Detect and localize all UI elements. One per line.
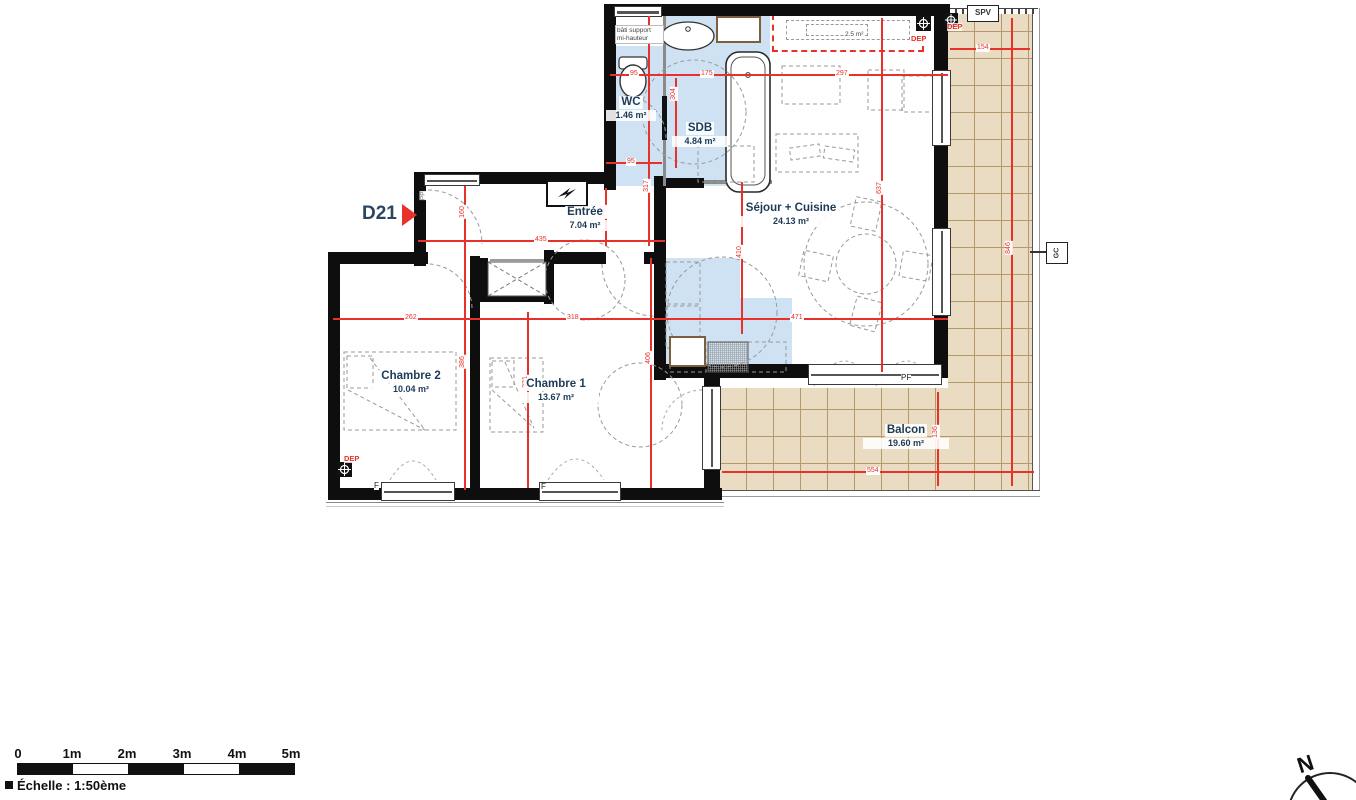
sejour-right-window-2 bbox=[932, 228, 951, 316]
scale-segment bbox=[128, 764, 183, 774]
room-name: Séjour + Cuisine bbox=[744, 202, 838, 215]
room-label-ch2: Chambre 2 10.04 m² bbox=[368, 366, 454, 395]
pp-label: PP bbox=[420, 191, 428, 200]
dim-value: 554 bbox=[866, 467, 880, 475]
wall-ch1-top-a bbox=[552, 252, 606, 264]
wall-step-top bbox=[328, 252, 428, 264]
room-name: Balcon bbox=[885, 424, 927, 437]
dim-line-v-650 bbox=[650, 258, 652, 488]
ch1-balcony-window bbox=[702, 386, 721, 470]
room-name: Entrée bbox=[565, 206, 605, 219]
room-area: 24.13 m² bbox=[736, 216, 846, 226]
sejour-furniture bbox=[776, 66, 936, 172]
dim-value: 406 bbox=[645, 351, 653, 365]
scale-bullet bbox=[5, 781, 13, 789]
dim-value: 154 bbox=[976, 44, 990, 52]
dim-value: 386 bbox=[459, 355, 467, 369]
wall-ch1-right bbox=[654, 176, 666, 380]
room-name: Chambre 2 bbox=[379, 370, 442, 383]
dim-line-h-top bbox=[610, 74, 948, 76]
gc-label: GC bbox=[1047, 248, 1067, 259]
dim-line-v-648 bbox=[648, 16, 650, 246]
spv-label: SPV bbox=[975, 8, 991, 17]
ch1-door-arc bbox=[602, 264, 654, 316]
scale-tick: 3m bbox=[173, 746, 192, 761]
room-label-balcon: Balcon 19.60 m² bbox=[863, 420, 949, 449]
room-name: Chambre 1 bbox=[524, 378, 587, 391]
entrance-door bbox=[424, 174, 480, 186]
scale-caption: Échelle : 1:50ème bbox=[17, 778, 126, 793]
f-label: F bbox=[541, 483, 546, 491]
balc-window-arc bbox=[662, 390, 702, 430]
floorplan-page: { "unit": { "label": "D21" }, "rooms": {… bbox=[0, 0, 1356, 800]
room-label-wc: WC 1.46 m² bbox=[606, 92, 656, 121]
dep-label: DEP bbox=[911, 35, 926, 43]
pf-label: PF bbox=[901, 374, 911, 382]
gc-box: GC bbox=[1046, 242, 1068, 264]
dim-value: 317 bbox=[643, 179, 651, 193]
room-area: 7.04 m² bbox=[552, 220, 618, 230]
dep-label: DEP bbox=[344, 455, 359, 463]
scale-tick: 1m bbox=[63, 746, 82, 761]
unit-label: D21 bbox=[362, 203, 397, 225]
dim-value: 95 bbox=[629, 70, 639, 78]
dim-value: 160 bbox=[459, 205, 467, 219]
bati-line2: mi-hauteur bbox=[617, 35, 648, 42]
room-area: 13.67 m² bbox=[513, 392, 599, 402]
wc-top-window bbox=[614, 6, 662, 17]
dim-value: 471 bbox=[790, 314, 804, 322]
room-name: SDB bbox=[686, 122, 714, 135]
room-label-sdb: SDB 4.84 m² bbox=[672, 118, 728, 147]
dim-value: 262 bbox=[404, 314, 418, 322]
room-area: 10.04 m² bbox=[368, 384, 454, 394]
kitchen-notch bbox=[740, 258, 792, 298]
scale-tick: 0 bbox=[14, 746, 21, 761]
dim-line-v-881 bbox=[881, 18, 883, 372]
dim-value: 637 bbox=[876, 181, 884, 195]
bati-line1: bâti support bbox=[617, 27, 651, 34]
bati-support-note: bâti support mi-hauteur bbox=[615, 25, 664, 44]
gc-connector bbox=[1030, 251, 1046, 253]
balcony-tiles-right bbox=[948, 14, 1032, 490]
scale-segment bbox=[184, 764, 239, 774]
room-label-ch1: Chambre 1 13.67 m² bbox=[513, 374, 599, 403]
halfwall-sdb bbox=[704, 180, 772, 184]
compass: N bbox=[1256, 740, 1356, 800]
storage-area-label: 2.5 m² bbox=[845, 31, 863, 39]
scale-tick: 5m bbox=[282, 746, 301, 761]
room-area: 19.60 m² bbox=[863, 438, 949, 448]
scale-tick: 4m bbox=[228, 746, 247, 761]
ch2-window-arc bbox=[390, 461, 436, 480]
dep-label: DEP bbox=[947, 23, 962, 31]
ch2-window bbox=[381, 482, 455, 501]
room-label-entree: Entrée 7.04 m² bbox=[552, 202, 618, 231]
dim-value: 95 bbox=[626, 158, 636, 166]
ch1-window-arc bbox=[548, 459, 604, 480]
dim-value: 846 bbox=[1005, 241, 1013, 255]
scale-segment bbox=[239, 764, 294, 774]
room-area: 1.46 m² bbox=[606, 110, 656, 120]
unit-arrow-icon bbox=[402, 204, 417, 226]
spv-box: SPV bbox=[967, 5, 999, 22]
scale-segment bbox=[18, 764, 73, 774]
dim-value: 435 bbox=[534, 236, 548, 244]
entrance-door-arc bbox=[428, 190, 482, 244]
compass-needle-icon bbox=[1308, 778, 1346, 800]
f-label: F bbox=[374, 482, 379, 490]
dim-value: 304 bbox=[670, 87, 678, 101]
compass-north-label: N bbox=[1294, 750, 1317, 779]
room-label-sejour: Séjour + Cuisine 24.13 m² bbox=[736, 198, 846, 227]
wall-wc-divider-b bbox=[663, 140, 666, 186]
facade-line bbox=[326, 502, 724, 507]
duct-2 bbox=[669, 336, 706, 367]
room-area: 4.84 m² bbox=[672, 136, 728, 146]
dim-line-v-465 bbox=[464, 186, 466, 490]
scale-bar-segments bbox=[17, 763, 295, 775]
sejour-right-window-1 bbox=[932, 70, 951, 146]
balcony-railing-bottom bbox=[712, 490, 1040, 497]
wall-placard-bottom bbox=[480, 294, 554, 302]
placard-icon bbox=[488, 259, 546, 296]
dim-line-h-balcony-top bbox=[950, 48, 1030, 50]
dim-line-h-chambers bbox=[333, 318, 948, 320]
scale-tick: 2m bbox=[118, 746, 137, 761]
wall-sejour-right bbox=[934, 4, 948, 378]
dim-value: 410 bbox=[736, 245, 744, 259]
wall-outer-left bbox=[328, 252, 340, 500]
room-name: WC bbox=[619, 96, 642, 109]
sejour-pf-window bbox=[808, 364, 942, 385]
dim-value: 175 bbox=[700, 70, 714, 78]
scale-segment bbox=[73, 764, 128, 774]
dim-value: 297 bbox=[835, 70, 849, 78]
ch1-window bbox=[539, 482, 621, 501]
wall-between-chambers bbox=[470, 256, 480, 490]
duct-1 bbox=[716, 16, 761, 43]
dim-value: 318 bbox=[566, 314, 580, 322]
